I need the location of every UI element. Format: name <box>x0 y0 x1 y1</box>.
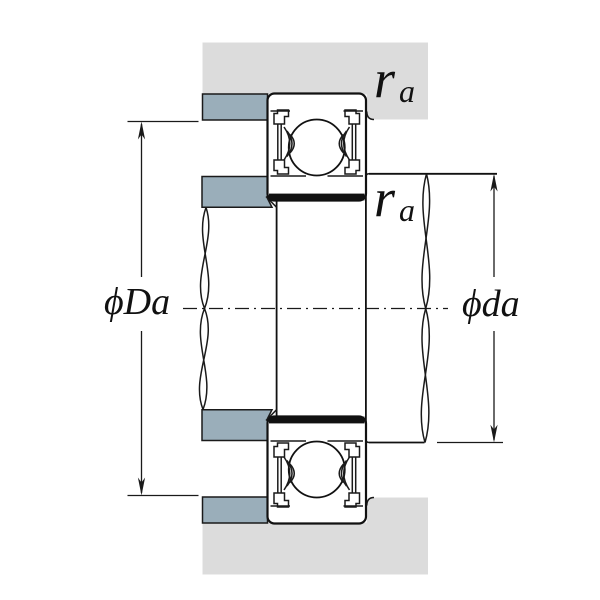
bearing-diagram: ϕDa ϕda ra ra <box>0 0 600 600</box>
bearing-bottom <box>268 417 367 524</box>
bearing-diagram-canvas: ϕDa ϕda ra ra <box>0 0 600 600</box>
housing-shoulder-ring-bottom <box>203 497 268 523</box>
bearing-top <box>268 94 367 201</box>
fillet-symbol: r <box>374 168 396 228</box>
fillet-subscript: a <box>399 73 415 109</box>
fillet-symbol: r <box>374 49 396 109</box>
label-housing-abutment-diameter: ϕDa <box>104 281 170 323</box>
fillet-subscript: a <box>399 192 415 228</box>
housing-shoulder-ring-top <box>203 94 268 120</box>
shaft-spacer-ring-bottom <box>202 410 272 441</box>
label-fillet-radius-shaft: ra <box>374 168 415 228</box>
label-shaft-abutment-diameter: ϕda <box>462 283 520 325</box>
shaft-spacer-ring-top <box>202 177 272 208</box>
